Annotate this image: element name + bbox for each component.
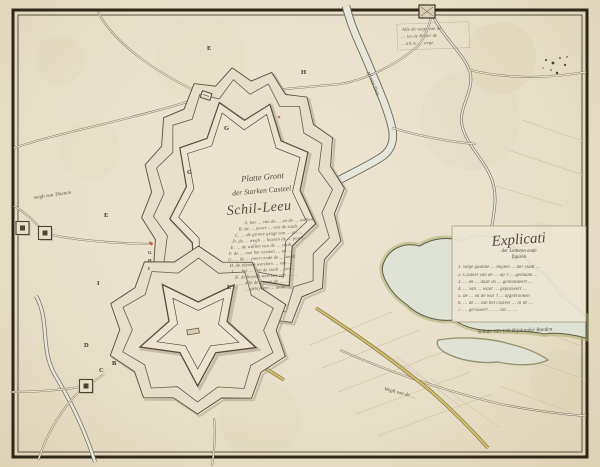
map-letter: B [112, 360, 117, 367]
redoubt-core [20, 226, 25, 231]
road-label-southeast: Wegh van de … [383, 386, 416, 400]
explicati-item: 1. wege gaande … buyten … der stadt … [458, 265, 540, 270]
fortifications-layer [110, 68, 346, 416]
road-surface [38, 374, 104, 460]
map-letter: I [148, 266, 150, 271]
ink-dot [552, 62, 555, 65]
annotation-note: Alle de wege van de … tot de Rivier de …… [397, 22, 470, 50]
explicati-item: 2. Casteel van de … op 't … gemaakt … [458, 273, 538, 278]
field-line [378, 394, 492, 436]
explicati-item: 7. … geraseert … … tot … … [458, 308, 517, 313]
explicati-panel: Explicati der Letteren ende figuren 1. w… [452, 226, 586, 335]
fort-top-right [419, 5, 435, 18]
ink-dot [559, 57, 561, 59]
river-water [332, 6, 393, 184]
field-line [396, 356, 462, 408]
road-casing [38, 374, 104, 460]
ink-dot [545, 59, 547, 61]
marsh-pond-south [437, 338, 548, 365]
map-letter: G [224, 125, 229, 132]
map-letter: G [148, 250, 152, 255]
ink-dot [556, 72, 558, 74]
explicati-item: 4. … van … waar … gepasseert … [458, 287, 527, 292]
map-letter: D [84, 342, 89, 349]
map-canvas: Explicati der Letteren ende figuren 1. w… [0, 0, 600, 467]
redoubt-core [84, 384, 89, 389]
gate-red-mark [278, 116, 281, 119]
field-line [508, 150, 586, 176]
map-letter: I [97, 280, 100, 287]
redoubt-southwest [80, 380, 95, 395]
map-letter: E [207, 45, 211, 52]
explicati-item: 6. … de … van het casteel … in de … [458, 301, 533, 306]
field-line [522, 120, 586, 142]
redoubt-far-west [16, 222, 31, 237]
map-letter: E [227, 284, 231, 291]
explicati-item: 3. … en … daar de … geinondeert … [458, 280, 533, 285]
redoubt-west [39, 227, 54, 242]
annotation-line: … als te … wege [400, 40, 433, 46]
gate-red-mark [148, 241, 153, 245]
annotation-line: Alle de wege van de [401, 26, 442, 32]
stain [35, 35, 85, 85]
ink-dot [566, 56, 567, 57]
road-label-west: wegh van Thienen [33, 190, 72, 201]
historic-map: Explicati der Letteren ende figuren 1. w… [0, 0, 600, 467]
ink-spatter [542, 56, 567, 74]
ink-dot [564, 64, 566, 66]
field-line [496, 186, 562, 206]
road-surface [212, 418, 215, 466]
map-letter: H [148, 258, 152, 263]
field-line [430, 378, 500, 428]
road-casing [14, 206, 148, 244]
map-letter: G [187, 169, 192, 176]
stain [60, 120, 120, 180]
explicati-subtitle-2: figuren [512, 255, 527, 260]
explicati-item: 5. de … en de wal 't … afgebrooken [458, 294, 530, 299]
ink-dot [550, 69, 552, 71]
road-surface [14, 206, 148, 244]
redoubt-core [43, 231, 48, 236]
explicati-subtitle-1: der Letteren ende [501, 249, 537, 254]
map-letter: C [99, 367, 104, 374]
field-line [310, 312, 392, 345]
map-letter: H [301, 69, 306, 76]
ink-dot [542, 67, 543, 68]
map-letter: E [104, 212, 108, 219]
annotation-line: … tot de Rivier de [401, 33, 437, 39]
